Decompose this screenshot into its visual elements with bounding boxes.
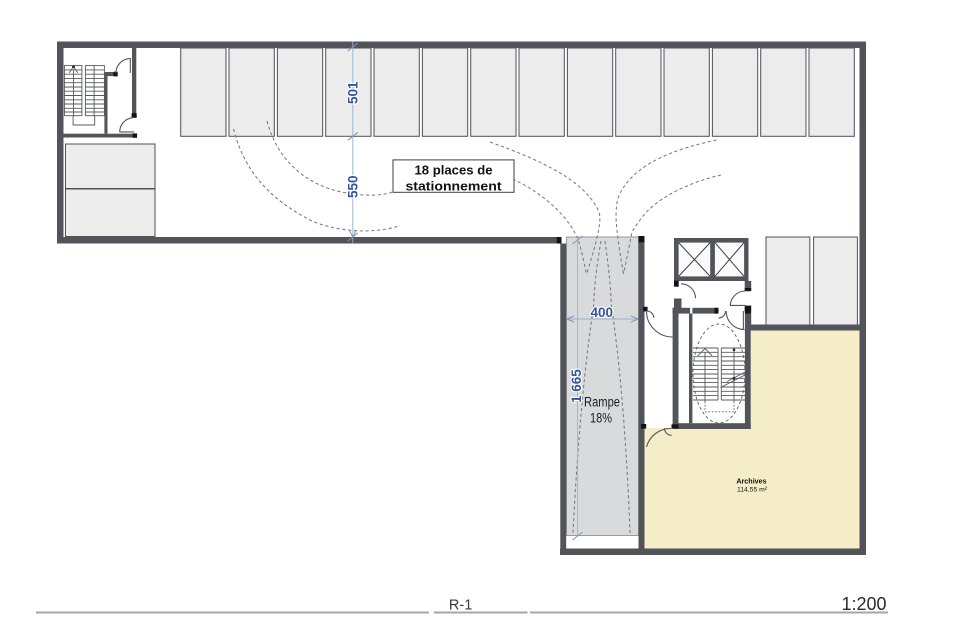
svg-text:550: 550: [346, 175, 361, 198]
svg-text:501: 501: [346, 81, 361, 104]
svg-text:18%: 18%: [590, 411, 612, 426]
svg-text:stationnement: stationnement: [406, 179, 503, 194]
svg-text:Archives: Archives: [736, 477, 766, 486]
svg-text:Rampe: Rampe: [584, 395, 620, 410]
svg-text:1:200: 1:200: [841, 594, 886, 614]
svg-text:400: 400: [591, 305, 614, 320]
svg-text:1 665: 1 665: [569, 369, 584, 403]
svg-text:18 places de: 18 places de: [415, 163, 493, 178]
svg-text:114,55 m²: 114,55 m²: [737, 487, 768, 494]
svg-text:R-1: R-1: [449, 598, 472, 614]
